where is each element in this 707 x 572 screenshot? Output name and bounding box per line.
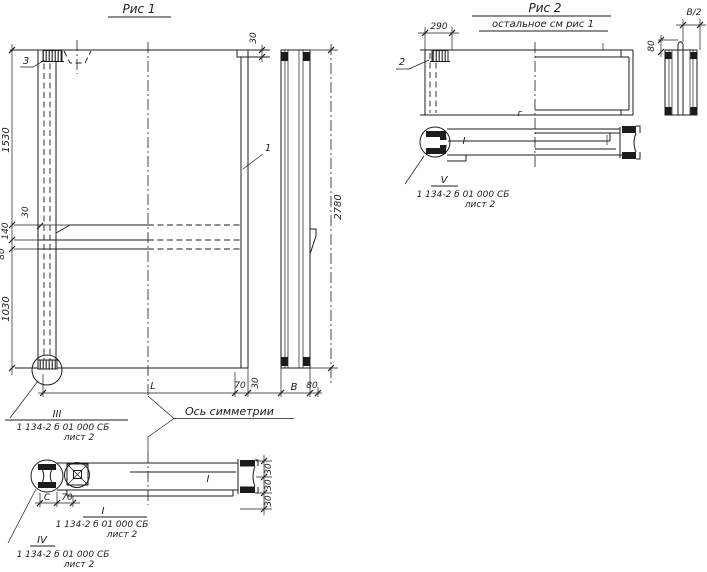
detail-V-block: V 1 134-2 б 01 000 СБ лист 2 (405, 156, 509, 210)
dim-290: 290 (430, 22, 447, 32)
fig1-section-mark: I (207, 474, 210, 485)
callout-1-label: 1 (265, 143, 271, 154)
fig1-plan-view (10, 40, 270, 397)
detail-iii-doc: 1 134-2 б 01 000 СБ (17, 423, 110, 433)
fig2-section-view: I (420, 126, 640, 161)
detail-circle-clamp (420, 127, 450, 157)
fig1-left-dimensions: 1530 140 80 1030 30 (0, 44, 70, 375)
dim-30-topright: 30 (249, 32, 259, 44)
dim-B: B (291, 382, 298, 393)
fig1-side-view (281, 50, 316, 368)
fig1-bottom-dimensions: L 70 30 B 80 (38, 368, 322, 397)
fig1-dim-30-topright: 30 (249, 32, 265, 62)
drawing-sheet: Рис 1 (0, 0, 707, 572)
detail-i-sheet: лист 2 (106, 530, 138, 540)
detail-circle-key (65, 463, 90, 488)
dim-70-bottom: 70 (234, 381, 246, 391)
dim-30-sec-3: 30 (264, 495, 274, 507)
dim-140: 140 (1, 222, 11, 239)
dim-C: C (44, 493, 51, 503)
detail-iii-numeral: III (53, 409, 62, 420)
technical-drawing: Рис 1 (0, 0, 707, 572)
callout-2-label: 2 (399, 57, 405, 68)
callout-3-label: 3 (23, 56, 29, 67)
fig2-dim-290: 290 (418, 22, 459, 50)
dim-2780: 2780 (333, 194, 344, 219)
detail-i-doc: 1 134-2 б 01 000 СБ (56, 520, 149, 530)
fig2-plan-view: г (420, 42, 633, 170)
fig2-section-end-profile (620, 126, 640, 159)
fig2-dim-80: 80 (647, 35, 678, 57)
detail-I-block: I 1 134-2 б 01 000 СБ лист 2 (56, 506, 149, 540)
fig1-dim-2780: 2780 (310, 44, 344, 383)
anchor-block-3 (41, 51, 64, 62)
dim-L: L (150, 381, 156, 392)
fig2-subtitle: остальное см рис 1 (492, 19, 594, 30)
fig1-callout-1: 1 (243, 143, 271, 169)
dim-30-sec-1: 30 (264, 463, 274, 475)
side-ledge (310, 229, 316, 254)
fig2-side-view (665, 42, 697, 115)
detail-iv-doc: 1 134-2 б 01 000 СБ (17, 550, 110, 560)
dim-80-fig2: 80 (647, 40, 657, 52)
fig1-title: Рис 1 (122, 2, 155, 16)
axis-label-text: Ось симметрии (185, 405, 274, 418)
fig2-title-block: Рис 2 остальное см рис 1 (472, 1, 611, 31)
dim-1530: 1530 (1, 127, 12, 152)
dim-B2: В/2 (687, 8, 702, 18)
fig2-section-letter: г (518, 109, 523, 119)
fig1-section-end-profile (238, 459, 258, 494)
dim-30-sec-2: 30 (264, 479, 274, 491)
dim-80-left: 80 (0, 248, 7, 260)
fig2-title: Рис 2 (528, 1, 561, 15)
detail-iii-sheet: лист 2 (63, 433, 95, 443)
detail-iv-numeral: IV (37, 535, 48, 546)
dim-30-bottom: 30 (251, 377, 261, 389)
symmetry-axis-label: Ось симметрии (148, 396, 294, 452)
fig2-callout-2: 2 (396, 57, 429, 69)
detail-iv-sheet: лист 2 (63, 560, 95, 570)
detail-circle-brace (31, 460, 63, 492)
detail-i-numeral: I (102, 506, 105, 517)
fig2-section-mark: I (463, 136, 466, 147)
anchor-block-2 (430, 51, 450, 62)
fig1-section-bottom-dimensions: C 70 (35, 492, 80, 507)
detail-v-numeral: V (441, 175, 449, 186)
dim-1030: 1030 (1, 296, 12, 321)
dim-80-bottom: 80 (306, 381, 318, 391)
fig2-dim-b2: В/2 (676, 8, 706, 50)
dim-30-chamfer: 30 (21, 206, 31, 218)
anchor-block-detail-III (32, 355, 62, 385)
dim-70-section: 70 (61, 493, 73, 503)
detail-v-doc: 1 134-2 б 01 000 СБ (417, 190, 510, 200)
detail-III-block: III 1 134-2 б 01 000 СБ лист 2 (5, 381, 128, 443)
detail-v-sheet: лист 2 (464, 200, 496, 210)
fig1-title-block: Рис 1 (108, 2, 171, 17)
